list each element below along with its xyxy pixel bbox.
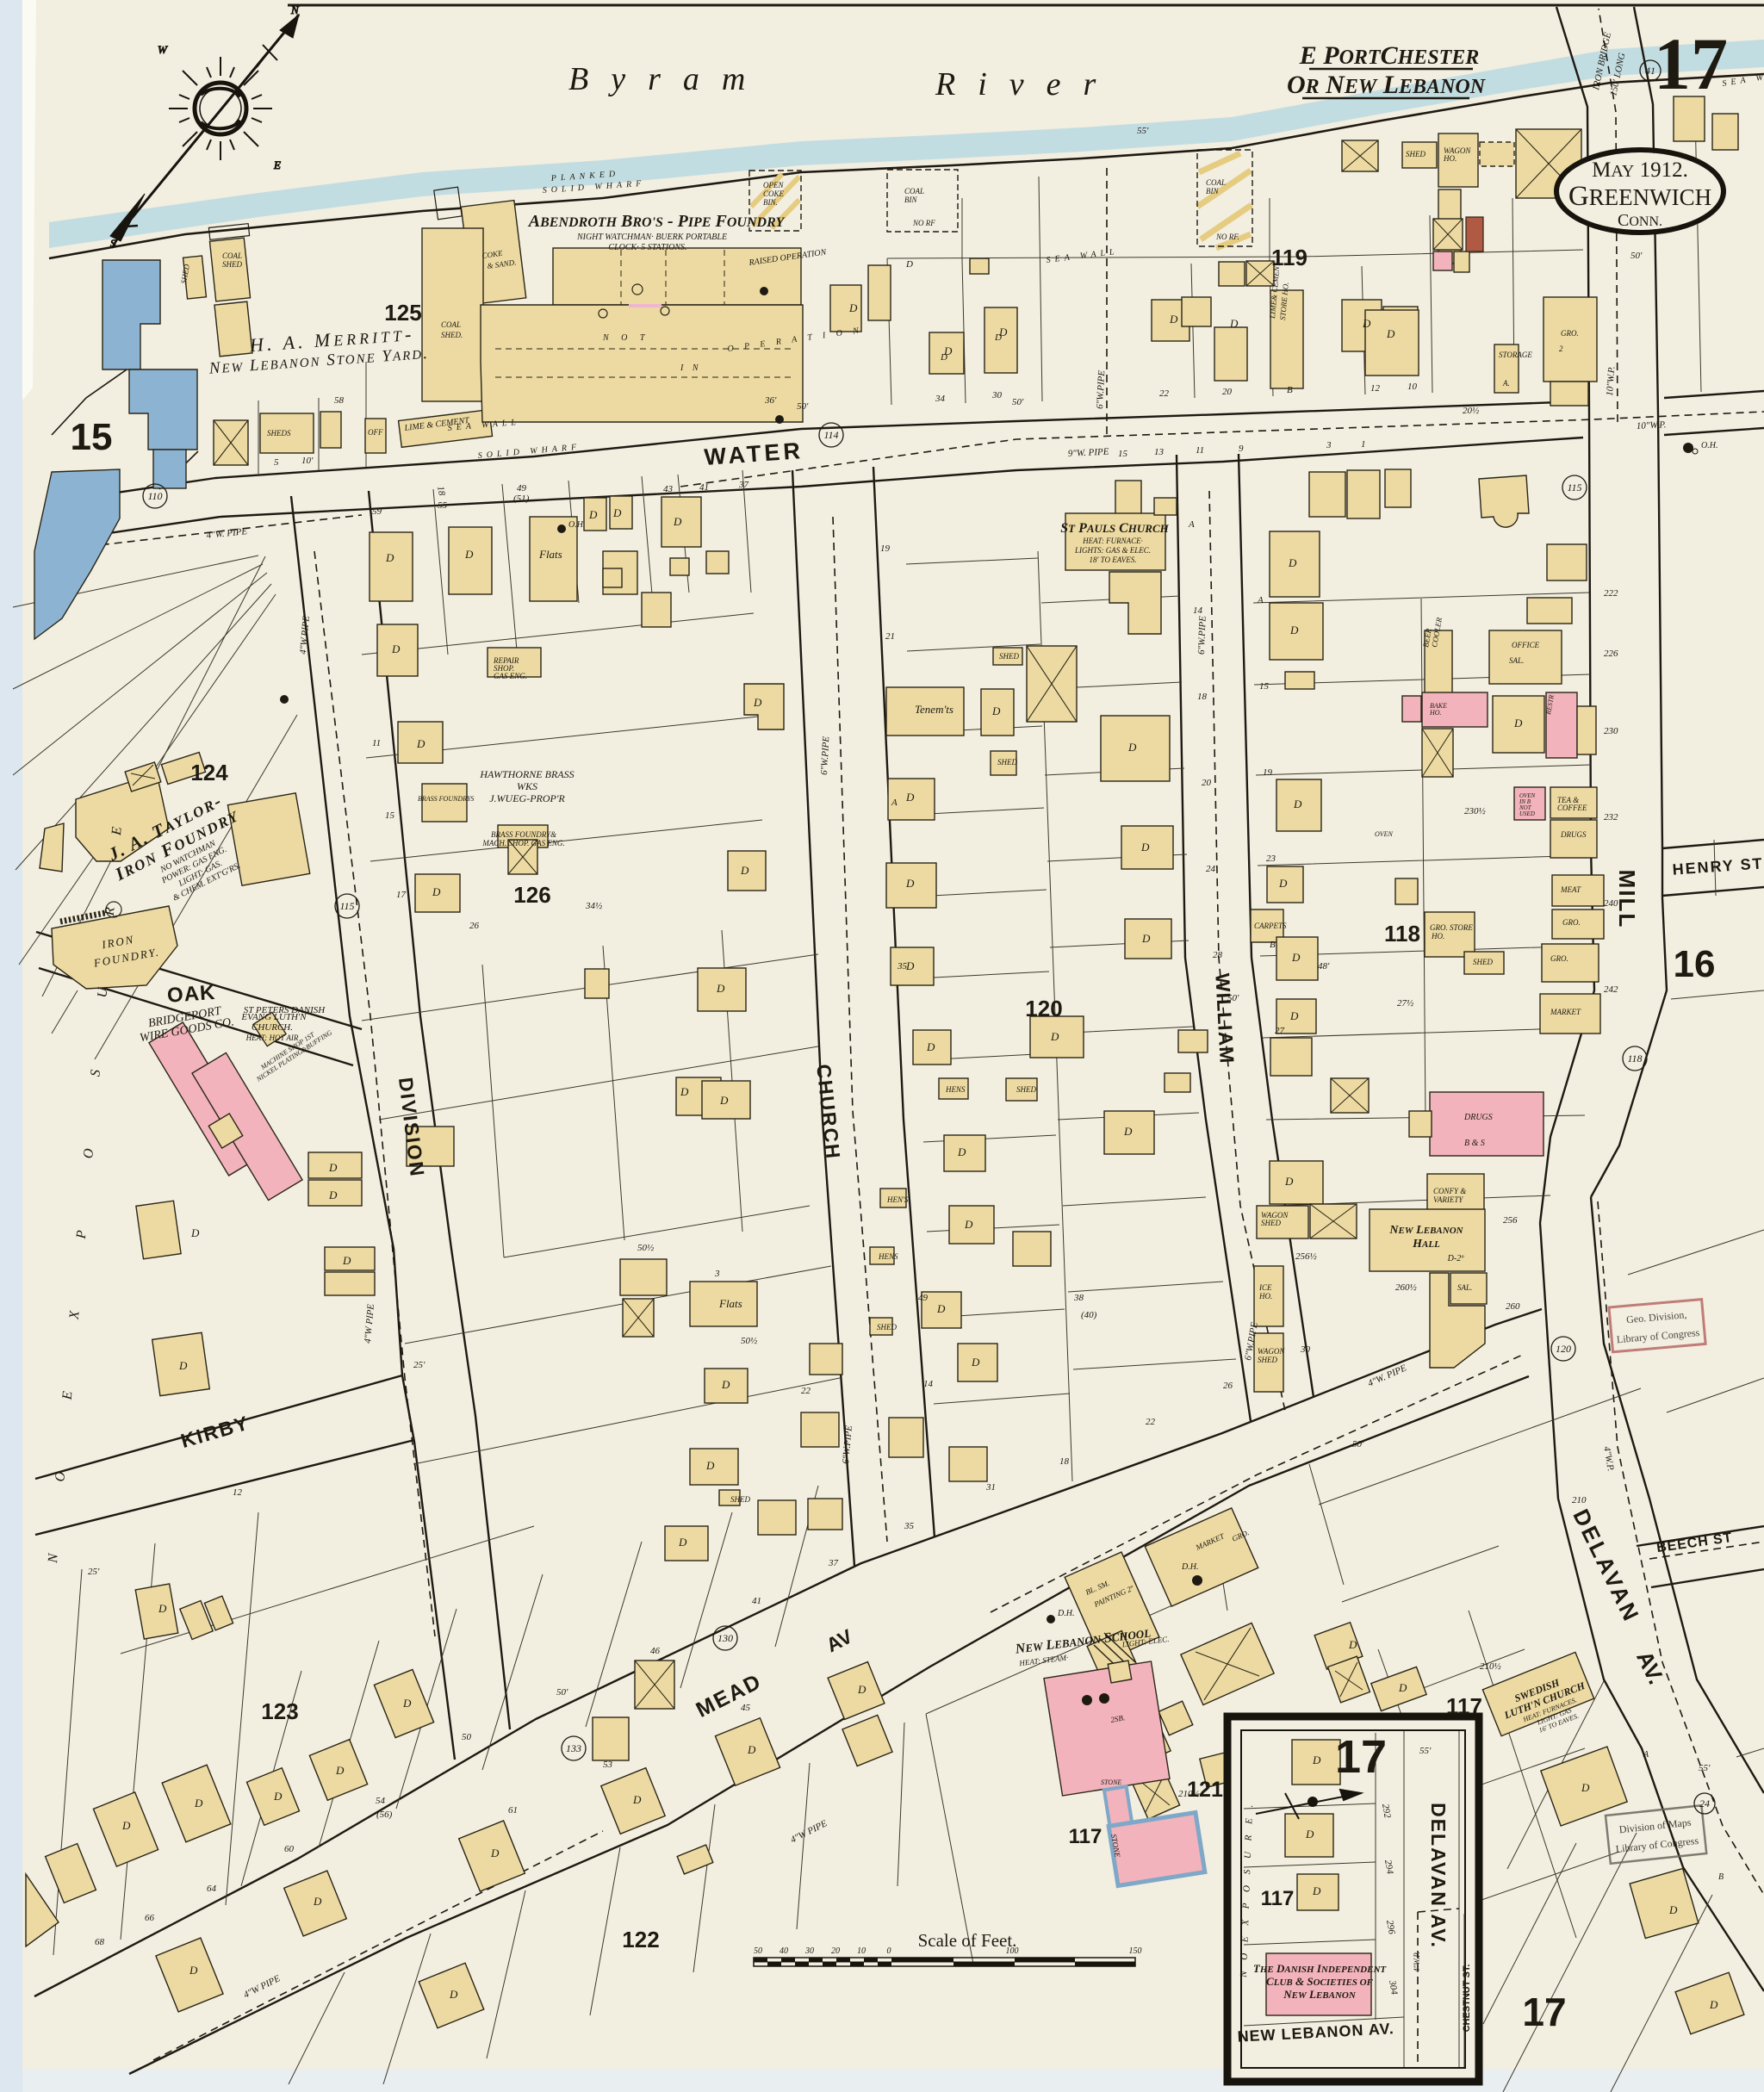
svg-text:230½: 230½ <box>1464 806 1486 816</box>
svg-text:13: 13 <box>1154 447 1165 457</box>
svg-text:222: 222 <box>1604 588 1618 599</box>
svg-text:17: 17 <box>396 890 407 900</box>
svg-text:CHURCH.: CHURCH. <box>252 1022 293 1033</box>
svg-text:N O T: N O T <box>602 333 649 343</box>
svg-text:HO.: HO. <box>1429 709 1442 717</box>
svg-text:HO.: HO. <box>1431 932 1444 940</box>
svg-text:THE DANISH INDEPENDENT: THE DANISH INDEPENDENT <box>1253 1962 1388 1975</box>
svg-text:D.H.: D.H. <box>1181 1562 1198 1572</box>
svg-text:LIGHTS: GAS & ELEC.: LIGHTS: GAS & ELEC. <box>1074 546 1151 555</box>
svg-text:NIGHT WATCHMAN· BUERK PORTABLE: NIGHT WATCHMAN· BUERK PORTABLE <box>576 233 727 242</box>
svg-text:D: D <box>1513 717 1523 729</box>
svg-text:17: 17 <box>1654 22 1728 105</box>
svg-text:SHED: SHED <box>1016 1085 1036 1094</box>
svg-text:61: 61 <box>508 1805 518 1816</box>
svg-text:CLOCK· 5 STATIONS.: CLOCK· 5 STATIONS. <box>608 243 686 252</box>
svg-text:31: 31 <box>985 1482 996 1493</box>
svg-text:Tenem'ts: Tenem'ts <box>915 703 953 716</box>
svg-text:D: D <box>1289 1009 1299 1022</box>
svg-text:9: 9 <box>1239 444 1244 454</box>
svg-text:DELAVAN AV.: DELAVAN AV. <box>1427 1803 1450 1949</box>
svg-text:50½: 50½ <box>741 1336 757 1346</box>
svg-text:COAL: COAL <box>441 320 461 329</box>
svg-text:B: B <box>1718 1872 1724 1882</box>
svg-text:35: 35 <box>904 1521 915 1531</box>
svg-text:25': 25' <box>88 1567 100 1577</box>
svg-text:10"W.P.: 10"W.P. <box>1605 366 1617 396</box>
svg-text:50': 50' <box>556 1687 568 1698</box>
svg-text:120: 120 <box>1025 996 1062 1021</box>
svg-text:DRUGS: DRUGS <box>1560 830 1587 839</box>
svg-text:6"W.PIPE: 6"W.PIPE <box>1196 616 1208 655</box>
svg-text:3: 3 <box>714 1269 720 1279</box>
svg-text:SHED: SHED <box>877 1323 897 1332</box>
svg-text:D: D <box>753 696 762 709</box>
svg-text:S: S <box>110 237 116 250</box>
svg-text:22: 22 <box>1146 1417 1156 1427</box>
svg-text:14: 14 <box>923 1379 934 1389</box>
svg-text:BIN.: BIN. <box>763 198 778 207</box>
svg-text:2: 2 <box>1559 345 1563 353</box>
svg-text:OFF: OFF <box>368 428 383 437</box>
svg-text:D: D <box>1288 556 1297 569</box>
svg-text:D: D <box>991 705 1001 717</box>
svg-text:B: B <box>1287 385 1293 395</box>
svg-text:Scale of Feet.: Scale of Feet. <box>918 1930 1017 1951</box>
svg-text:WAGON: WAGON <box>1258 1347 1285 1356</box>
svg-text:D: D <box>1398 1681 1407 1694</box>
svg-text:34: 34 <box>935 394 946 404</box>
svg-text:D: D <box>1123 1125 1133 1138</box>
svg-text:256: 256 <box>1503 1215 1518 1226</box>
svg-text:SHED: SHED <box>1473 958 1493 966</box>
svg-text:COAL: COAL <box>904 187 924 196</box>
svg-text:SHED: SHED <box>999 652 1019 661</box>
svg-text:GRO.: GRO. <box>1561 329 1579 338</box>
svg-text:45: 45 <box>741 1703 751 1713</box>
svg-text:230: 230 <box>1604 726 1618 736</box>
svg-text:64: 64 <box>207 1884 217 1894</box>
svg-text:D: D <box>328 1161 338 1174</box>
svg-text:117: 117 <box>1446 1693 1482 1719</box>
svg-text:COKE: COKE <box>763 189 785 198</box>
svg-text:D: D <box>1362 317 1371 330</box>
svg-text:37: 37 <box>738 480 749 490</box>
svg-text:D: D <box>632 1793 642 1806</box>
svg-text:HO.: HO. <box>1443 154 1457 163</box>
svg-text:Flats: Flats <box>538 548 562 561</box>
svg-text:ICE: ICE <box>1258 1283 1272 1292</box>
svg-text:D: D <box>716 982 725 995</box>
svg-text:20: 20 <box>1222 387 1233 397</box>
svg-text:SHED: SHED <box>997 758 1017 767</box>
svg-text:133: 133 <box>566 1742 581 1754</box>
svg-text:20: 20 <box>1202 778 1212 788</box>
svg-text:D: D <box>957 1145 966 1158</box>
svg-text:(40): (40) <box>1081 1310 1097 1320</box>
svg-text:9"W. PIPE: 9"W. PIPE <box>1068 447 1109 459</box>
svg-text:242: 242 <box>1604 984 1618 995</box>
svg-text:16: 16 <box>1674 943 1716 985</box>
svg-text:114: 114 <box>823 429 838 441</box>
svg-text:O.H.: O.H. <box>1701 441 1717 450</box>
svg-text:50': 50' <box>1630 251 1643 261</box>
svg-text:37: 37 <box>828 1558 839 1568</box>
svg-text:D: D <box>1278 877 1288 890</box>
svg-text:HALL: HALL <box>1412 1238 1440 1251</box>
svg-text:CLUB & SOCIETIES OF: CLUB & SOCIETIES OF <box>1266 1975 1374 1988</box>
svg-text:COAL: COAL <box>1206 178 1226 187</box>
svg-text:D: D <box>432 885 441 898</box>
svg-text:66: 66 <box>145 1913 155 1923</box>
svg-text:D: D <box>905 877 915 890</box>
svg-text:118: 118 <box>1384 921 1420 947</box>
svg-text:MEAT: MEAT <box>1560 885 1581 894</box>
svg-text:COAL: COAL <box>222 251 242 260</box>
svg-text:D: D <box>1305 1828 1314 1841</box>
svg-text:SHED: SHED <box>1261 1219 1281 1227</box>
svg-text:21: 21 <box>885 631 895 642</box>
svg-text:D: D <box>1050 1030 1059 1043</box>
svg-text:50': 50' <box>1352 1439 1364 1450</box>
svg-text:10': 10' <box>301 456 314 466</box>
svg-text:D: D <box>1169 313 1178 326</box>
svg-text:D: D <box>1386 327 1395 340</box>
svg-text:D: D <box>971 1356 980 1369</box>
svg-text:HENS: HENS <box>878 1252 898 1261</box>
svg-text:MILL: MILL <box>1614 870 1640 929</box>
svg-text:MARKET: MARKET <box>1550 1008 1581 1016</box>
svg-text:A.: A. <box>1502 379 1510 388</box>
svg-text:58: 58 <box>334 395 345 406</box>
svg-text:D: D <box>857 1683 866 1696</box>
svg-text:150: 150 <box>1129 1946 1142 1956</box>
svg-text:18' TO EAVES.: 18' TO EAVES. <box>1089 556 1136 564</box>
svg-text:6"W.PIPE: 6"W.PIPE <box>819 736 831 775</box>
svg-text:36': 36' <box>764 395 777 406</box>
svg-text:10"W.P.: 10"W.P. <box>1637 419 1667 431</box>
svg-text:D: D <box>273 1790 283 1803</box>
svg-text:59: 59 <box>372 506 382 517</box>
svg-text:A: A <box>1257 595 1264 605</box>
svg-text:D: D <box>1229 317 1239 330</box>
svg-text:124: 124 <box>190 760 228 785</box>
svg-text:14: 14 <box>1193 605 1203 616</box>
svg-text:D: D <box>178 1359 188 1372</box>
svg-text:B & S: B & S <box>1464 1139 1485 1148</box>
svg-text:HEAT: HOT AIR: HEAT: HOT AIR <box>245 1034 299 1042</box>
svg-text:49: 49 <box>918 1293 929 1303</box>
svg-text:SHED: SHED <box>730 1495 750 1504</box>
svg-text:BIN: BIN <box>1206 187 1219 196</box>
svg-text:D: D <box>158 1602 167 1615</box>
svg-text:DRUGS: DRUGS <box>1463 1113 1493 1122</box>
svg-text:11: 11 <box>372 738 381 748</box>
svg-text:18: 18 <box>1197 692 1208 702</box>
svg-text:30: 30 <box>1300 1344 1311 1355</box>
svg-text:26: 26 <box>469 921 480 931</box>
svg-text:D: D <box>905 259 913 270</box>
svg-text:260½: 260½ <box>1395 1282 1417 1293</box>
svg-text:15: 15 <box>71 416 113 458</box>
svg-text:D: D <box>943 345 953 357</box>
svg-text:D: D <box>328 1189 338 1201</box>
svg-text:10: 10 <box>857 1946 866 1956</box>
svg-text:HO.: HO. <box>1258 1292 1272 1301</box>
svg-text:N: N <box>290 3 300 16</box>
svg-text:40: 40 <box>780 1946 788 1956</box>
svg-text:NO RF.: NO RF. <box>1215 233 1239 241</box>
svg-text:118: 118 <box>1627 1052 1642 1065</box>
svg-text:24: 24 <box>1699 1797 1710 1810</box>
svg-text:0: 0 <box>887 1946 891 1956</box>
svg-text:D.H.: D.H. <box>1057 1609 1074 1618</box>
svg-text:12: 12 <box>1370 383 1381 394</box>
svg-text:D: D <box>673 515 682 528</box>
svg-text:D: D <box>335 1764 345 1777</box>
svg-text:NEW LEBANON: NEW LEBANON <box>1388 1224 1463 1237</box>
svg-text:232: 232 <box>1604 812 1618 823</box>
svg-text:D: D <box>926 1040 935 1053</box>
svg-text:17: 17 <box>1522 1990 1566 2034</box>
svg-text:MAY 1912.: MAY 1912. <box>1592 158 1688 182</box>
svg-text:210: 210 <box>1572 1495 1587 1505</box>
svg-text:15: 15 <box>385 810 395 821</box>
svg-text:B: B <box>1270 940 1276 950</box>
svg-text:HEN'S: HEN'S <box>886 1195 909 1204</box>
svg-text:D: D <box>189 1964 198 1977</box>
svg-text:23: 23 <box>1266 854 1276 864</box>
svg-text:17: 17 <box>1335 1731 1387 1783</box>
svg-text:D: D <box>905 791 915 804</box>
svg-text:27½: 27½ <box>1397 998 1413 1009</box>
svg-text:41: 41 <box>1645 65 1655 77</box>
svg-text:E: E <box>273 158 281 171</box>
svg-text:SHED: SHED <box>222 260 242 269</box>
svg-text:20: 20 <box>831 1946 840 1956</box>
svg-text:120: 120 <box>1556 1343 1571 1355</box>
svg-text:A: A <box>1188 519 1195 530</box>
svg-text:GRO. STORE: GRO. STORE <box>1430 923 1473 932</box>
svg-text:19: 19 <box>1263 767 1273 778</box>
svg-text:(51): (51) <box>513 494 530 504</box>
svg-text:D: D <box>936 1302 946 1315</box>
svg-text:D: D <box>402 1697 412 1710</box>
svg-text:CHESTNUT ST.: CHESTNUT ST. <box>1462 1965 1472 2033</box>
svg-text:STORAGE: STORAGE <box>1499 351 1532 359</box>
svg-text:126: 126 <box>513 882 550 908</box>
svg-text:D: D <box>719 1094 729 1107</box>
svg-text:WKS: WKS <box>517 780 537 792</box>
svg-text:210½: 210½ <box>1178 1789 1200 1799</box>
svg-text:OVEN: OVEN <box>1375 830 1394 838</box>
svg-text:VARIETY: VARIETY <box>1433 1195 1463 1204</box>
svg-text:28: 28 <box>1213 950 1223 960</box>
svg-text:OFFICE: OFFICE <box>1512 641 1539 649</box>
svg-text:NEW LEBANON: NEW LEBANON <box>1283 1988 1357 2001</box>
svg-text:110: 110 <box>147 490 162 502</box>
svg-text:GRO.: GRO. <box>1562 918 1581 927</box>
svg-text:24: 24 <box>1206 864 1216 874</box>
svg-text:SHED: SHED <box>1406 150 1425 158</box>
svg-text:55': 55' <box>1419 1746 1432 1756</box>
svg-text:11: 11 <box>1196 445 1204 456</box>
svg-text:D: D <box>194 1797 203 1810</box>
svg-text:117: 117 <box>1069 1825 1102 1848</box>
svg-text:100: 100 <box>1006 1946 1019 1956</box>
svg-text:5: 5 <box>274 457 279 468</box>
svg-text:GREENWICH: GREENWICH <box>1568 181 1711 212</box>
svg-text:OPEN: OPEN <box>763 181 784 189</box>
svg-text:BRASS FOUNDRYS: BRASS FOUNDRYS <box>418 795 474 803</box>
svg-text:D: D <box>1312 1754 1321 1766</box>
svg-text:50½: 50½ <box>637 1243 654 1253</box>
svg-text:D: D <box>721 1378 730 1391</box>
svg-text:260: 260 <box>1506 1301 1520 1312</box>
svg-text:D: D <box>680 1085 689 1098</box>
svg-text:D: D <box>1709 1998 1718 2011</box>
svg-text:50': 50' <box>1012 397 1024 407</box>
svg-text:W: W <box>158 43 168 56</box>
svg-text:EVANG LUTH'N: EVANG LUTH'N <box>240 1012 307 1022</box>
svg-text:D: D <box>1141 932 1151 945</box>
svg-text:D: D <box>964 1218 973 1231</box>
svg-text:10: 10 <box>1407 382 1418 392</box>
svg-text:D: D <box>416 737 425 750</box>
svg-text:46: 46 <box>650 1646 661 1656</box>
svg-text:D: D <box>464 548 474 561</box>
svg-text:240: 240 <box>1604 898 1618 909</box>
svg-text:Byram: Byram <box>568 61 767 97</box>
svg-text:D: D <box>490 1847 500 1859</box>
svg-text:20½: 20½ <box>1463 406 1479 416</box>
svg-text:SHED: SHED <box>1258 1356 1277 1364</box>
svg-text:D: D <box>612 506 622 519</box>
svg-text:50': 50' <box>1227 993 1239 1003</box>
svg-text:D: D <box>1668 1903 1678 1916</box>
svg-text:26: 26 <box>1223 1381 1233 1391</box>
svg-text:226: 226 <box>1604 649 1618 659</box>
svg-text:49: 49 <box>517 483 527 494</box>
svg-text:HENS: HENS <box>945 1085 966 1094</box>
svg-text:25': 25' <box>413 1360 425 1370</box>
svg-text:122: 122 <box>622 1927 659 1952</box>
svg-text:3: 3 <box>1326 440 1332 450</box>
svg-text:1: 1 <box>1361 439 1366 450</box>
svg-text:D: D <box>740 864 749 877</box>
svg-text:D: D <box>1289 624 1299 636</box>
svg-text:ABENDROTH BRO'S - PIPE FOUNDRY: ABENDROTH BRO'S - PIPE FOUNDRY <box>527 212 786 231</box>
svg-text:A: A <box>1643 1750 1649 1760</box>
svg-text:USED: USED <box>1519 810 1535 817</box>
svg-text:68: 68 <box>95 1937 105 1947</box>
svg-text:D: D <box>678 1536 687 1549</box>
svg-text:210½: 210½ <box>1480 1661 1501 1672</box>
svg-text:BIN: BIN <box>904 196 917 204</box>
svg-text:55': 55' <box>1137 126 1149 136</box>
svg-text:50: 50 <box>462 1732 472 1742</box>
svg-text:ST PAULS CHURCH: ST PAULS CHURCH <box>1060 521 1169 536</box>
svg-text:I N: I N <box>680 363 702 373</box>
svg-text:D: D <box>588 508 598 521</box>
svg-text:CARPETS: CARPETS <box>1254 922 1287 930</box>
svg-text:15: 15 <box>1259 681 1270 692</box>
svg-text:D: D <box>1581 1781 1590 1794</box>
svg-text:115: 115 <box>1567 481 1581 494</box>
svg-text:55: 55 <box>438 500 448 511</box>
svg-text:HAWTHORNE BRASS: HAWTHORNE BRASS <box>479 768 574 780</box>
svg-text:D: D <box>905 959 915 972</box>
svg-text:D: D <box>313 1895 322 1908</box>
svg-text:43: 43 <box>663 484 674 494</box>
svg-text:53: 53 <box>603 1760 613 1770</box>
svg-text:41: 41 <box>752 1596 761 1606</box>
svg-text:D: D <box>705 1459 715 1472</box>
svg-text:River: River <box>935 66 1118 102</box>
svg-text:130: 130 <box>717 1632 733 1644</box>
svg-text:D: D <box>449 1988 458 2001</box>
svg-text:CONFY &: CONFY & <box>1433 1187 1466 1195</box>
svg-text:34½: 34½ <box>585 901 602 911</box>
svg-text:O.H.: O.H. <box>568 520 585 530</box>
svg-text:GAS ENG.: GAS ENG. <box>494 672 527 680</box>
svg-text:15: 15 <box>1118 449 1128 459</box>
svg-text:D: D <box>190 1226 200 1239</box>
svg-text:MACH. SHOP. GAS ENG.: MACH. SHOP. GAS ENG. <box>481 839 564 847</box>
svg-text:55': 55' <box>1699 1763 1711 1773</box>
svg-text:D: D <box>1293 798 1302 810</box>
svg-text:D-2º: D-2º <box>1447 1254 1465 1263</box>
svg-text:30: 30 <box>804 1946 814 1956</box>
svg-text:D: D <box>1348 1638 1357 1651</box>
svg-text:125: 125 <box>384 300 421 326</box>
svg-text:WILLIAM: WILLIAM <box>1211 972 1238 1065</box>
svg-text:117: 117 <box>1261 1887 1295 1910</box>
svg-text:D: D <box>848 301 858 314</box>
svg-text:41: 41 <box>699 482 709 493</box>
svg-text:30: 30 <box>991 390 1003 400</box>
svg-text:D: D <box>998 326 1008 338</box>
svg-text:A: A <box>891 798 898 808</box>
svg-text:SAL.: SAL. <box>1457 1283 1472 1292</box>
svg-text:D: D <box>1127 741 1137 754</box>
svg-text:BRASS FOUNDRY&: BRASS FOUNDRY& <box>491 830 556 839</box>
svg-text:6"W.PIPE: 6"W.PIPE <box>1095 369 1107 409</box>
svg-text:HEAT: FURNACE·: HEAT: FURNACE· <box>1082 537 1143 545</box>
svg-text:Flats: Flats <box>718 1297 742 1310</box>
svg-text:STONE: STONE <box>1101 1779 1121 1786</box>
svg-text:256½: 256½ <box>1295 1251 1317 1262</box>
svg-text:SHEDS: SHEDS <box>267 429 291 438</box>
svg-text:4"W.P.: 4"W.P. <box>1413 1952 1421 1972</box>
svg-text:D: D <box>121 1819 131 1832</box>
svg-text:54: 54 <box>376 1796 386 1806</box>
svg-text:NO RF: NO RF <box>912 219 935 227</box>
svg-text:48': 48' <box>1318 961 1330 972</box>
svg-text:18: 18 <box>1059 1456 1070 1467</box>
svg-text:D: D <box>391 642 401 655</box>
svg-text:(56): (56) <box>376 1810 393 1820</box>
svg-text:12: 12 <box>233 1487 243 1498</box>
svg-text:50: 50 <box>754 1946 762 1956</box>
svg-text:D: D <box>1312 1884 1321 1897</box>
svg-text:D: D <box>342 1254 351 1267</box>
svg-text:SHED.: SHED. <box>441 331 463 339</box>
svg-text:22: 22 <box>1159 388 1170 399</box>
svg-text:J.WUEG-PROP'R: J.WUEG-PROP'R <box>489 792 565 804</box>
svg-text:D: D <box>1140 841 1150 854</box>
svg-text:D: D <box>1291 951 1301 964</box>
